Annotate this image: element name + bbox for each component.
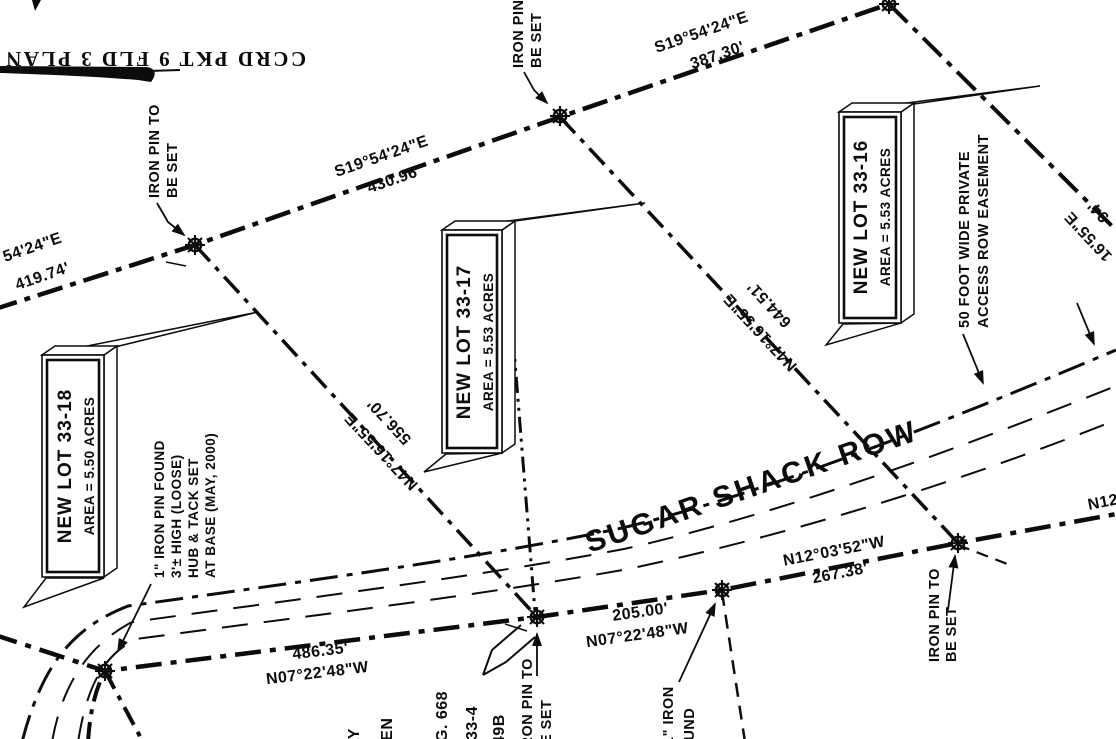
box-side-face: [502, 221, 515, 453]
edge-fragment-4: 33-4: [464, 706, 481, 739]
iron-pin-marker: [185, 235, 205, 255]
pin-label-line1: IRON PIN TO: [511, 0, 527, 68]
edge-fragment-2: SEN: [379, 718, 396, 739]
lot-area: AREA = 5.53 ACRES: [481, 273, 496, 411]
lot-name: NEW LOT 33-18: [55, 389, 76, 543]
box-side-face: [104, 346, 117, 577]
lot-area: AREA = 5.50 ACRES: [82, 397, 97, 535]
iron-pin-marker: [948, 533, 968, 553]
monument-note-line1: 1" IRON PIN FOUND: [152, 440, 167, 578]
lot-name: NEW LOT 33-17: [454, 265, 475, 419]
pin-label-line2: BE SET: [165, 143, 181, 198]
plat-sheet: CCRD PKT 9 FLD 3 PLAN 22 NEW LOT 33-18 A…: [0, 0, 1116, 739]
monument-note-line3: HUB & TACK SET: [186, 458, 201, 578]
edge-fragment-5: 49B: [491, 714, 508, 739]
easement-label-line1: 50 FOOT WIDE PRIVATE: [957, 151, 973, 328]
box-top-face: [442, 221, 515, 230]
pin-label-line1: IRON PIN TO: [520, 658, 536, 739]
lot-name: NEW LOT 33-16: [851, 140, 872, 294]
pin-label-line2: BE SET: [944, 607, 960, 662]
pin-label-line2: BE SET: [539, 700, 555, 739]
iron-pin-marker: [550, 106, 570, 126]
pin-label-line1: IRON PIN TO: [927, 568, 943, 662]
box-side-face: [901, 103, 914, 323]
monument-note-line4: AT BASE (MAY, 2000): [203, 433, 218, 578]
pin-label-line1: IRON PIN TO: [147, 104, 163, 198]
easement-label-line2: ACCESS ROW EASEMENT: [976, 134, 992, 328]
box-top-face: [839, 103, 914, 112]
iron-pin-marker: [712, 580, 732, 600]
monument-note-line2: 3'± HIGH (LOOSE): [169, 454, 184, 578]
edge-fragment-3: G. 668: [434, 691, 451, 739]
box-top-face: [42, 346, 117, 355]
record-stamp-text: CCRD PKT 9 FLD 3 PLAN 22: [0, 47, 306, 71]
iron-pin-marker: [527, 607, 547, 627]
pin-label-line2: BE SET: [529, 13, 545, 68]
pin-label-line2: PIN FOUND: [682, 708, 698, 739]
edge-fragment-1: LY: [346, 728, 363, 739]
lot-area: AREA = 5.53 ACRES: [878, 148, 893, 286]
iron-pin-marker: [95, 661, 115, 681]
plat-drawing: CCRD PKT 9 FLD 3 PLAN 22 NEW LOT 33-18 A…: [0, 0, 1116, 739]
pin-label-line1: 1" IRON: [661, 686, 677, 739]
